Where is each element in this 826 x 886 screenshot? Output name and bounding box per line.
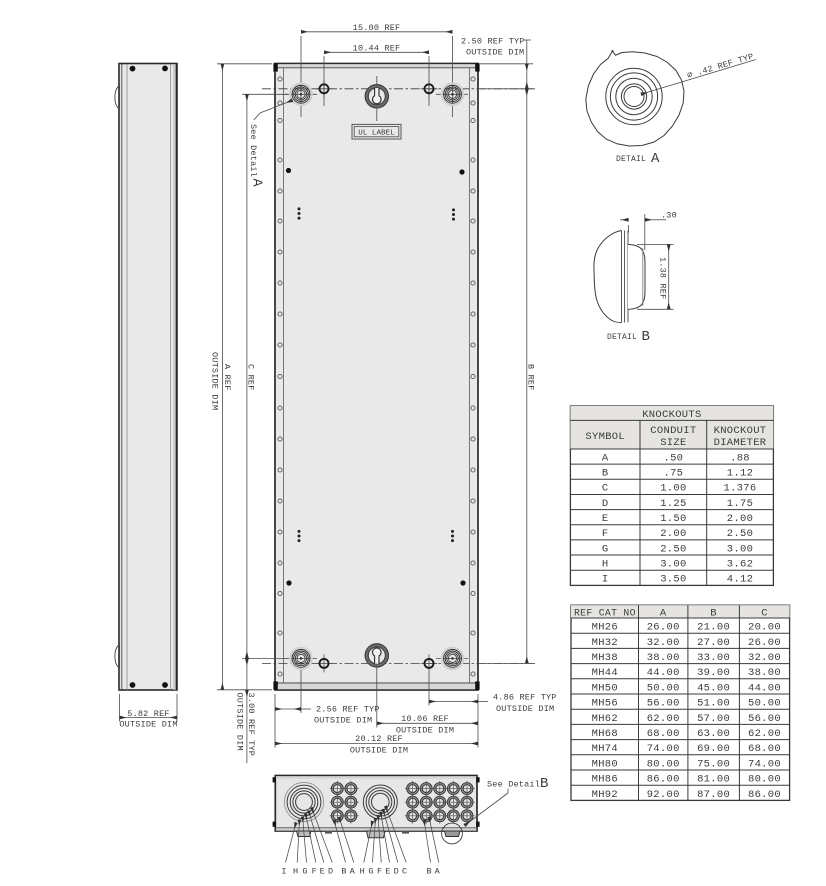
svg-text:1.00: 1.00 [660, 483, 686, 495]
svg-text:G: G [368, 867, 373, 877]
svg-text:A: A [651, 151, 660, 167]
svg-text:C: C [602, 483, 609, 495]
svg-text:A REF: A REF [222, 364, 232, 391]
svg-text:I: I [602, 574, 609, 586]
svg-text:80.00: 80.00 [748, 774, 781, 786]
svg-text:1.50: 1.50 [660, 513, 686, 525]
svg-text:I: I [281, 867, 286, 877]
svg-text:D: D [394, 867, 399, 877]
svg-text:33.00: 33.00 [697, 652, 730, 664]
svg-text:OUTSIDE DIM: OUTSIDE DIM [314, 716, 372, 726]
svg-text:H: H [602, 558, 609, 570]
svg-text:SYMBOL: SYMBOL [585, 431, 625, 443]
svg-text:D: D [328, 867, 333, 877]
svg-text:.30: .30 [661, 211, 677, 221]
svg-text:OUTSIDE DIM: OUTSIDE DIM [350, 746, 408, 756]
svg-text:75.00: 75.00 [697, 758, 730, 770]
svg-text:32.00: 32.00 [647, 637, 680, 649]
svg-text:OUTSIDE DIM: OUTSIDE DIM [209, 352, 219, 410]
svg-text:3.00 REF TYP: 3.00 REF TYP [246, 693, 256, 757]
svg-text:OUTSIDE DIM: OUTSIDE DIM [466, 48, 524, 58]
svg-text:H: H [293, 867, 298, 877]
svg-text:1.75: 1.75 [727, 498, 753, 510]
svg-text:KNOCKOUT: KNOCKOUT [714, 425, 767, 437]
svg-text:50.00: 50.00 [647, 682, 680, 694]
svg-text:44.00: 44.00 [748, 682, 781, 694]
svg-text:80.00: 80.00 [647, 758, 680, 770]
svg-text:62.00: 62.00 [748, 728, 781, 740]
svg-text:32.00: 32.00 [748, 652, 781, 664]
svg-text:A: A [660, 608, 667, 620]
svg-text:B REF: B REF [525, 364, 535, 391]
svg-text:D: D [602, 498, 609, 510]
svg-text:3.62: 3.62 [727, 558, 753, 570]
svg-text:E: E [385, 867, 390, 877]
svg-text:2.00: 2.00 [660, 528, 686, 540]
svg-text:.50: .50 [663, 452, 683, 464]
svg-text:45.00: 45.00 [697, 682, 730, 694]
svg-text:E: E [602, 513, 609, 525]
svg-text:DETAIL: DETAIL [607, 333, 637, 342]
svg-text:UL LABEL: UL LABEL [358, 130, 395, 138]
svg-text:H: H [360, 867, 365, 877]
svg-text:A: A [249, 179, 264, 188]
svg-text:68.00: 68.00 [647, 728, 680, 740]
svg-text:B: B [426, 867, 431, 877]
svg-text:2.50 REF TYP: 2.50 REF TYP [461, 37, 525, 47]
svg-text:74.00: 74.00 [647, 743, 680, 755]
svg-text:87.00: 87.00 [697, 789, 730, 801]
svg-text:DETAIL: DETAIL [616, 155, 646, 164]
svg-text:3.50: 3.50 [660, 574, 686, 586]
svg-text:3.00: 3.00 [727, 543, 753, 555]
svg-text:74.00: 74.00 [748, 758, 781, 770]
svg-text:C REF: C REF [246, 364, 256, 391]
svg-text:62.00: 62.00 [647, 713, 680, 725]
svg-text:SIZE: SIZE [660, 437, 686, 449]
svg-text:27.00: 27.00 [697, 637, 730, 649]
svg-text:38.00: 38.00 [647, 652, 680, 664]
svg-text:26.00: 26.00 [647, 622, 680, 634]
svg-text:4.12: 4.12 [727, 574, 753, 586]
svg-text:OUTSIDE DIM: OUTSIDE DIM [119, 720, 177, 730]
svg-text:MH86: MH86 [592, 774, 618, 786]
svg-text:2.00: 2.00 [727, 513, 753, 525]
svg-text:68.00: 68.00 [748, 743, 781, 755]
svg-text:2.56 REF TYP: 2.56 REF TYP [316, 705, 380, 715]
svg-text:C: C [761, 608, 768, 620]
svg-text:MH92: MH92 [592, 789, 618, 801]
svg-text:1.12: 1.12 [727, 468, 753, 480]
svg-text:B: B [642, 329, 650, 345]
svg-text:B: B [540, 776, 548, 792]
svg-text:.75: .75 [663, 468, 683, 480]
svg-text:REF CAT NO: REF CAT NO [574, 607, 636, 618]
svg-text:E: E [320, 867, 325, 877]
svg-text:MH74: MH74 [592, 743, 618, 755]
svg-text:69.00: 69.00 [697, 743, 730, 755]
svg-text:B: B [710, 608, 717, 620]
svg-text:5.82 REF: 5.82 REF [127, 709, 169, 719]
svg-text:F: F [602, 528, 609, 540]
svg-text:A: A [350, 867, 356, 877]
svg-text:1.38 REF: 1.38 REF [657, 257, 667, 299]
svg-text:DIAMETER: DIAMETER [714, 437, 767, 449]
svg-text:56.00: 56.00 [748, 713, 781, 725]
svg-text:38.00: 38.00 [748, 667, 781, 679]
svg-text:2.50: 2.50 [727, 528, 753, 540]
svg-text:57.00: 57.00 [697, 713, 730, 725]
svg-text:4.86 REF TYP: 4.86 REF TYP [493, 693, 557, 703]
svg-text:B: B [341, 867, 346, 877]
svg-text:.88: .88 [730, 452, 750, 464]
svg-text:20.12 REF: 20.12 REF [355, 734, 403, 744]
svg-text:81.00: 81.00 [697, 774, 730, 786]
svg-text:G: G [602, 543, 609, 555]
svg-text:2.50: 2.50 [660, 543, 686, 555]
svg-text:63.00: 63.00 [697, 728, 730, 740]
svg-text:26.00: 26.00 [748, 637, 781, 649]
svg-text:MH32: MH32 [592, 637, 618, 649]
svg-text:OUTSIDE DIM: OUTSIDE DIM [396, 725, 454, 735]
svg-text:92.00: 92.00 [647, 789, 680, 801]
svg-text:50.00: 50.00 [748, 698, 781, 710]
svg-text:G: G [302, 867, 307, 877]
svg-text:CONDUIT: CONDUIT [650, 425, 696, 437]
svg-text:MH68: MH68 [592, 728, 618, 740]
svg-text:B: B [602, 468, 609, 480]
svg-text:15.00 REF: 15.00 REF [353, 23, 401, 33]
svg-text:MH26: MH26 [592, 622, 618, 634]
svg-text:See Detail: See Detail [248, 124, 258, 177]
svg-text:39.00: 39.00 [697, 667, 730, 679]
svg-text:86.00: 86.00 [647, 774, 680, 786]
svg-text:F: F [377, 867, 382, 877]
svg-text:A: A [602, 452, 609, 464]
svg-text:A: A [435, 867, 441, 877]
svg-text:44.00: 44.00 [647, 667, 680, 679]
svg-text:3.00: 3.00 [660, 558, 686, 570]
svg-text:1.376: 1.376 [723, 483, 756, 495]
svg-text:OUTSIDE DIM: OUTSIDE DIM [496, 704, 554, 714]
svg-text:21.00: 21.00 [697, 622, 730, 634]
svg-text:See Detail: See Detail [487, 780, 540, 790]
svg-text:1.25: 1.25 [660, 498, 686, 510]
svg-text:10.06 REF: 10.06 REF [401, 714, 449, 724]
svg-text:MH80: MH80 [592, 758, 618, 770]
svg-text:MH38: MH38 [592, 652, 618, 664]
svg-text:86.00: 86.00 [748, 789, 781, 801]
svg-text:MH56: MH56 [592, 698, 618, 710]
svg-text:MH44: MH44 [592, 667, 618, 679]
svg-text:10.44 REF: 10.44 REF [353, 43, 401, 53]
svg-text:20.00: 20.00 [748, 622, 781, 634]
svg-text:F: F [312, 867, 317, 877]
svg-text:C: C [402, 867, 407, 877]
svg-text:56.00: 56.00 [647, 698, 680, 710]
svg-text:OUTSIDE DIM: OUTSIDE DIM [235, 693, 245, 751]
svg-text:MH50: MH50 [592, 682, 618, 694]
svg-text:51.00: 51.00 [697, 698, 730, 710]
svg-text:MH62: MH62 [592, 713, 618, 725]
svg-text:KNOCKOUTS: KNOCKOUTS [642, 409, 701, 421]
